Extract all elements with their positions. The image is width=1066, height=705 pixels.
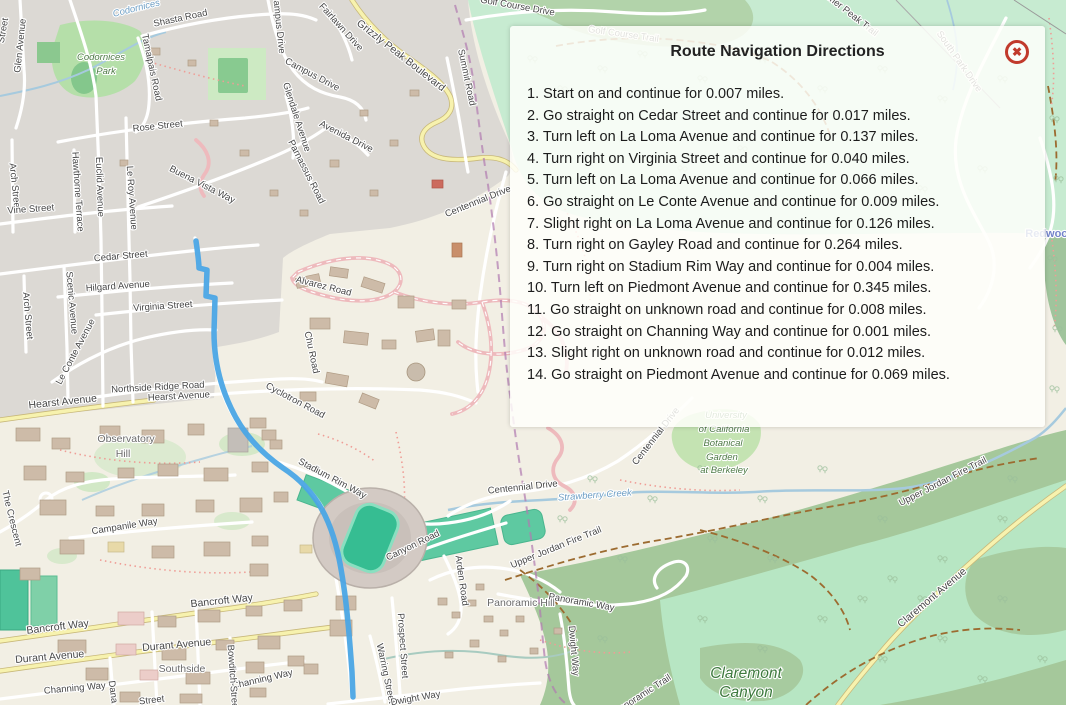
svg-text:Street: Street: [138, 693, 165, 705]
sports-field: [31, 576, 57, 626]
svg-text:Southside: Southside: [159, 663, 206, 675]
svg-text:Panoramic Hill: Panoramic Hill: [487, 597, 555, 609]
cyclotron-dome: [407, 363, 425, 381]
canyon-label: Claremont: [710, 665, 782, 682]
direction-step: 1. Start on and continue for 0.007 miles…: [527, 84, 995, 106]
svg-text:Garden: Garden: [706, 452, 738, 463]
directions-panel: Route Navigation Directions ✖ 1. Start o…: [510, 26, 1045, 427]
svg-text:Hill: Hill: [116, 448, 131, 460]
memorial-stadium: [313, 488, 427, 588]
direction-step: 3. Turn left on La Loma Avenue and conti…: [527, 127, 995, 149]
close-icon[interactable]: ✖: [1005, 40, 1029, 64]
panel-title: Route Navigation Directions: [520, 43, 1035, 61]
svg-text:Canyon: Canyon: [719, 684, 772, 701]
svg-text:Park: Park: [96, 66, 117, 77]
direction-step: 13. Slight right on unknown road and con…: [527, 343, 995, 365]
map-screen: Codornices Codornices Park Shasta Road T…: [0, 0, 1066, 705]
direction-step: 5. Turn left on La Loma Avenue and conti…: [527, 170, 995, 192]
direction-step: 10. Turn left on Piedmont Avenue and con…: [527, 278, 995, 300]
directions-list: 1. Start on and continue for 0.007 miles…: [510, 84, 1045, 386]
direction-step: 7. Slight right on La Loma Avenue and co…: [527, 214, 995, 236]
direction-step: 2. Go straight on Cedar Street and conti…: [527, 106, 995, 128]
direction-step: 6. Go straight on Le Conte Avenue and co…: [527, 192, 995, 214]
direction-step: 12. Go straight on Channing Way and cont…: [527, 322, 995, 344]
direction-step: 9. Turn right on Stadium Rim Way and con…: [527, 257, 995, 279]
direction-step: 4. Turn right on Virginia Street and con…: [527, 149, 995, 171]
direction-step: 8. Turn right on Gayley Road and continu…: [527, 235, 995, 257]
direction-step: 11. Go straight on unknown road and cont…: [527, 300, 995, 322]
svg-text:Observatory: Observatory: [97, 433, 155, 445]
direction-step: 14. Go straight on Piedmont Avenue and c…: [527, 365, 995, 387]
svg-text:at Berkeley: at Berkeley: [700, 465, 749, 476]
park-label: Codornices: [77, 52, 125, 63]
svg-text:Botanical: Botanical: [703, 438, 743, 449]
svg-text:Euclid Avenue: Euclid Avenue: [93, 157, 106, 217]
